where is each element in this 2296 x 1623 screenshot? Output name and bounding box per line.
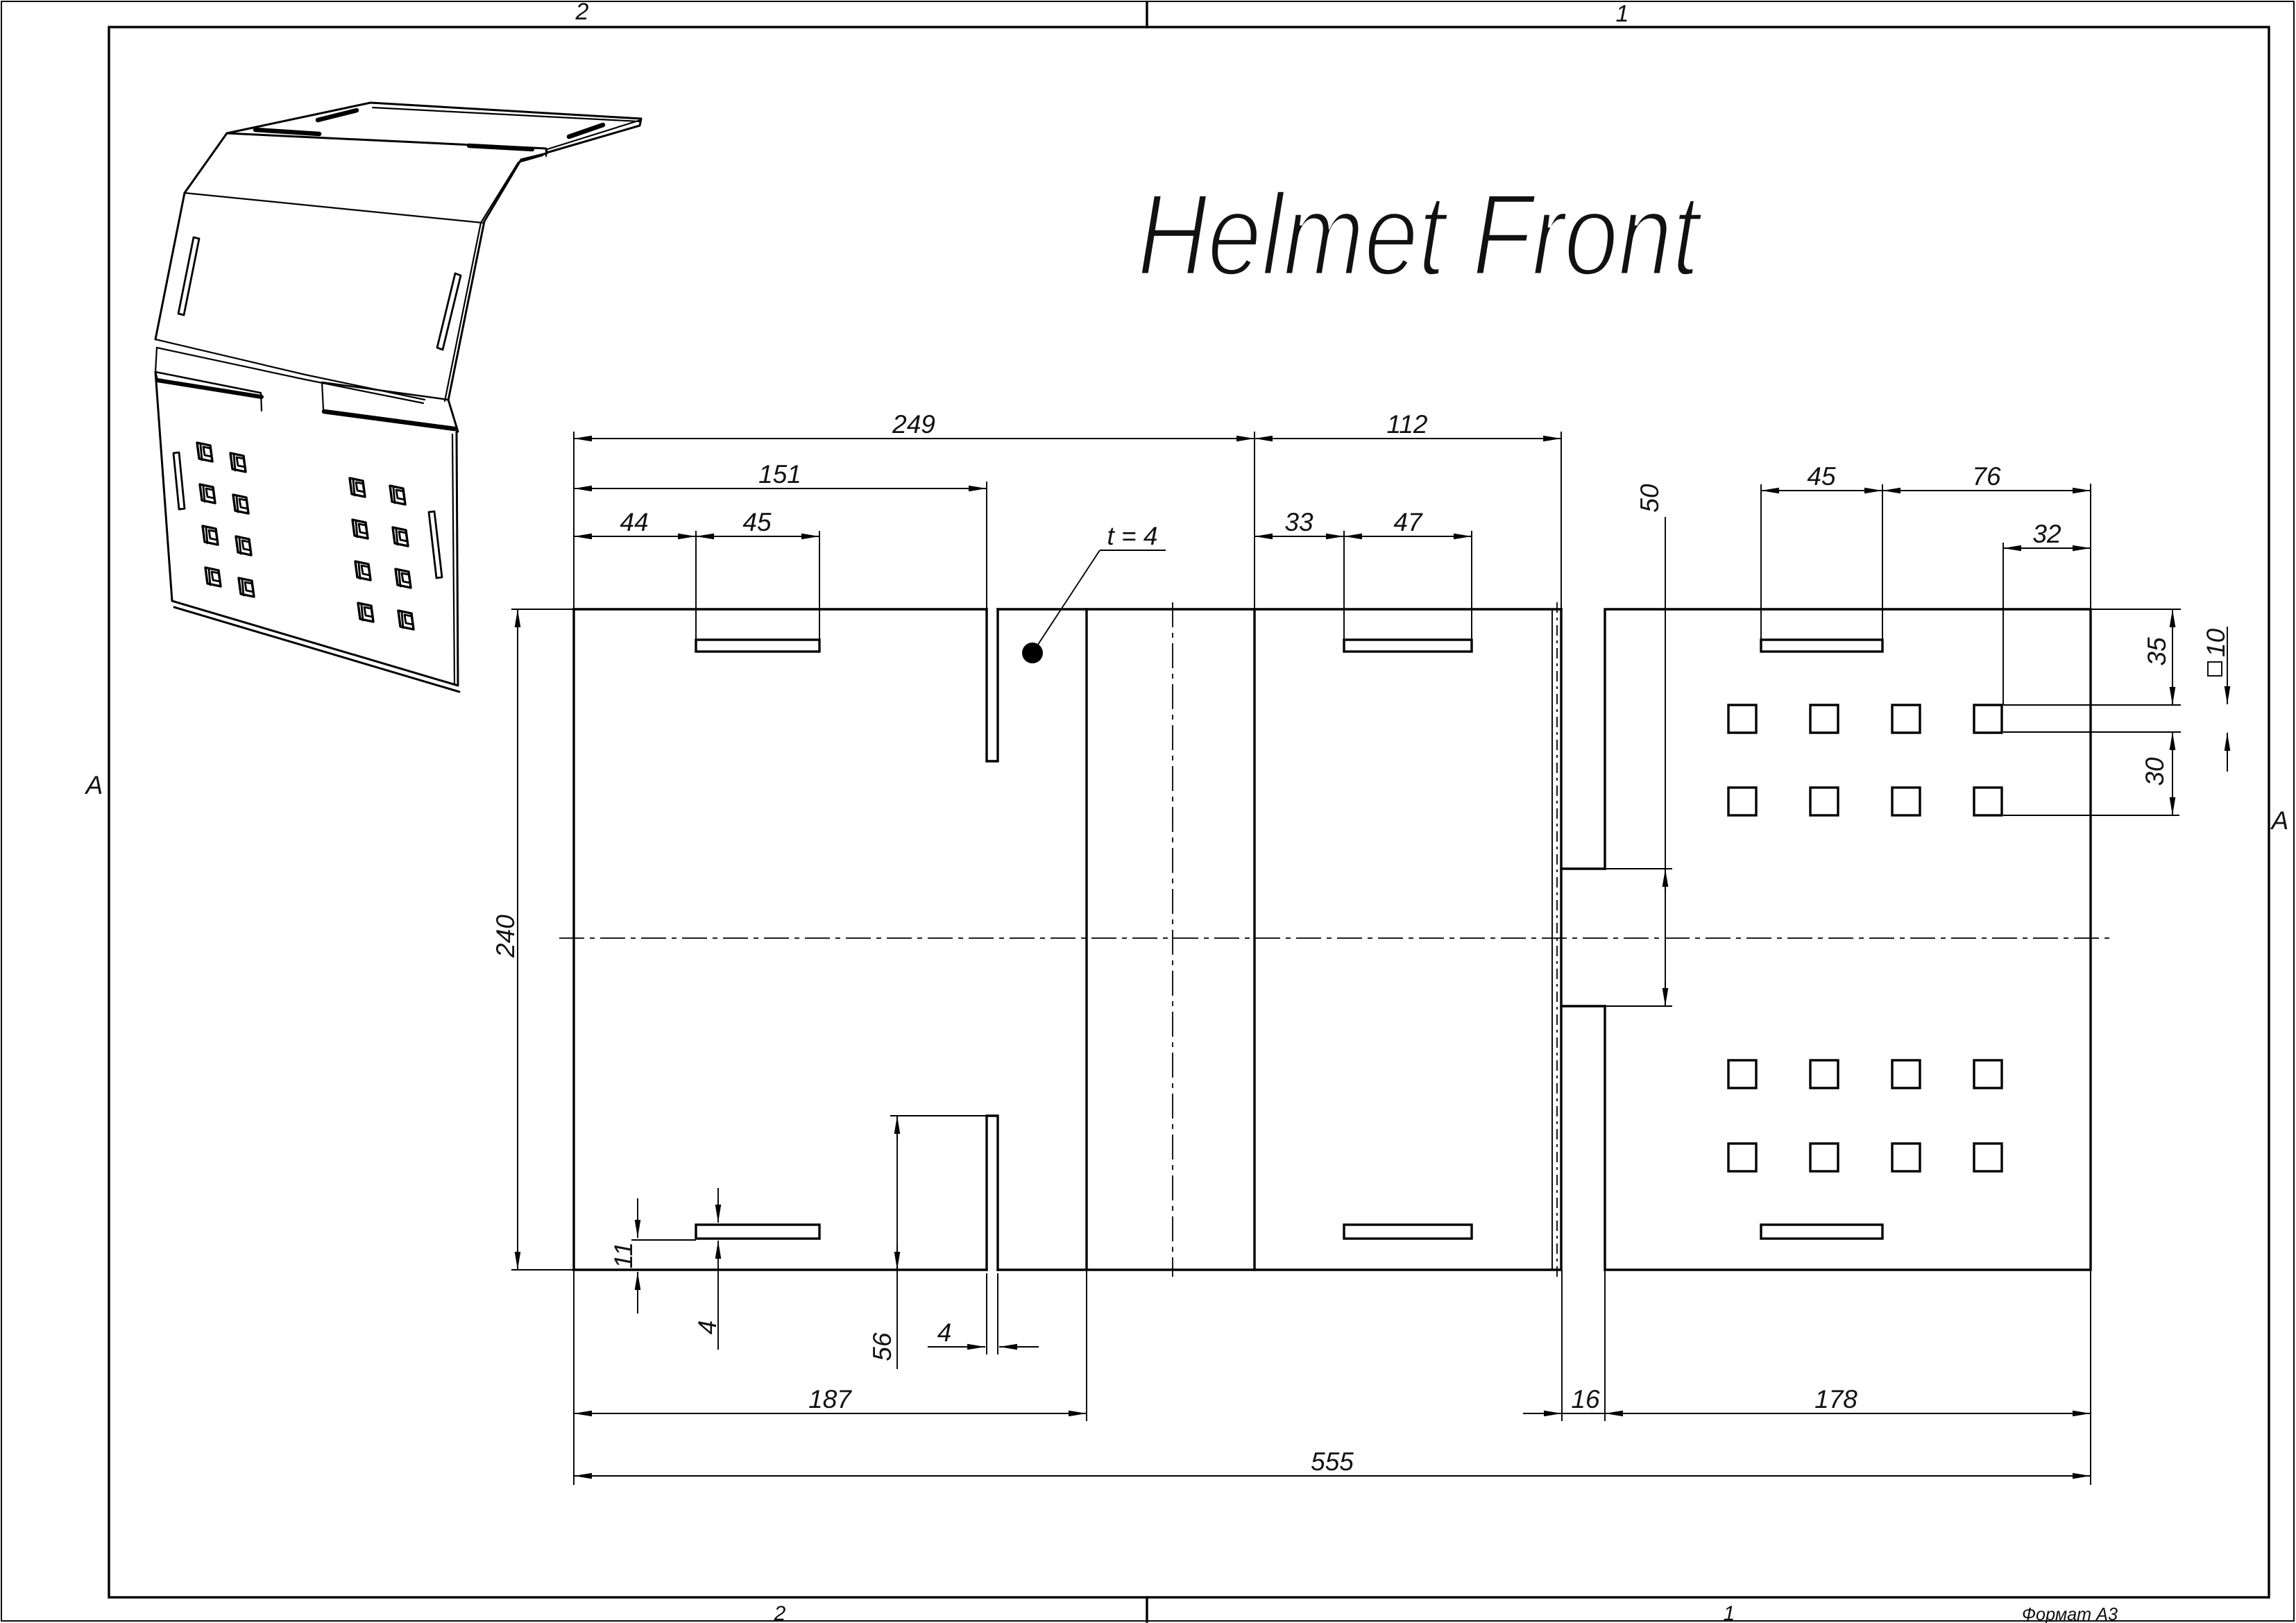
svg-text:A: A xyxy=(85,771,103,799)
svg-text:1: 1 xyxy=(1724,1602,1735,1623)
svg-text:45: 45 xyxy=(742,508,772,536)
svg-text:10: 10 xyxy=(2202,628,2230,657)
svg-text:178: 178 xyxy=(1814,1385,1857,1413)
svg-text:16: 16 xyxy=(1571,1385,1600,1413)
svg-text:56: 56 xyxy=(868,1332,896,1361)
svg-text:11: 11 xyxy=(609,1242,638,1268)
svg-text:249: 249 xyxy=(892,410,935,439)
svg-text:35: 35 xyxy=(2143,637,2171,666)
svg-text:2: 2 xyxy=(575,0,589,25)
svg-text:4: 4 xyxy=(937,1318,952,1347)
svg-text:2: 2 xyxy=(774,1602,786,1623)
svg-text:555: 555 xyxy=(1311,1447,1354,1476)
svg-text:Формат А3: Формат А3 xyxy=(2022,1604,2118,1623)
svg-text:45: 45 xyxy=(1807,462,1836,491)
svg-text:33: 33 xyxy=(1284,508,1313,536)
svg-text:151: 151 xyxy=(758,460,801,488)
svg-text:30: 30 xyxy=(2141,757,2169,786)
svg-text:t = 4: t = 4 xyxy=(1107,522,1157,550)
svg-text:240: 240 xyxy=(491,915,520,958)
svg-text:1: 1 xyxy=(1616,1,1629,27)
svg-text:50: 50 xyxy=(1635,484,1664,513)
svg-text:A: A xyxy=(2270,806,2289,835)
svg-text:32: 32 xyxy=(2032,520,2061,548)
svg-text:4: 4 xyxy=(693,1320,722,1335)
svg-text:112: 112 xyxy=(1387,410,1428,439)
svg-text:44: 44 xyxy=(620,508,648,536)
svg-text:187: 187 xyxy=(808,1385,852,1413)
svg-text:47: 47 xyxy=(1393,508,1423,536)
svg-text:Helmet Front: Helmet Front xyxy=(1137,169,1703,300)
svg-text:76: 76 xyxy=(1972,462,2001,491)
